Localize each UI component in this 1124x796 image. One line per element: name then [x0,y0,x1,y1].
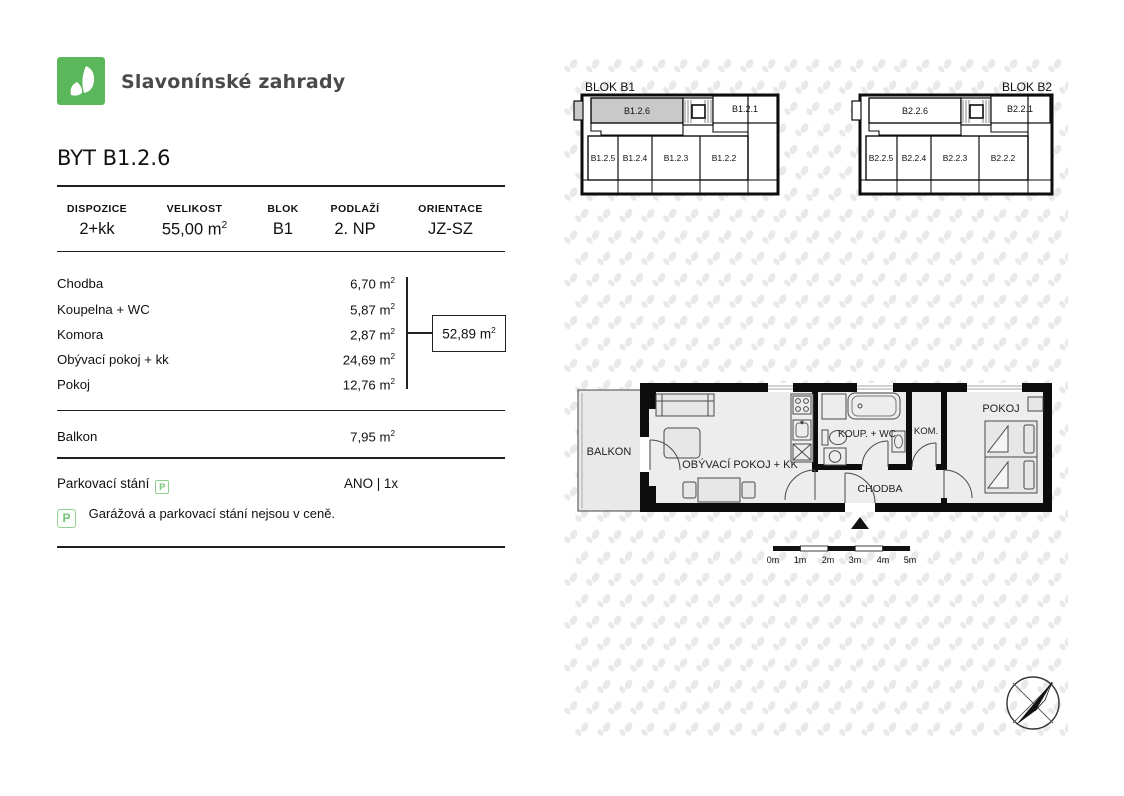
svg-text:0m: 0m [767,555,780,565]
svg-text:POKOJ: POKOJ [982,403,1019,415]
room-row: Chodba 6,70 m2 [57,276,505,296]
svg-text:B2.2.2: B2.2.2 [991,153,1016,163]
svg-text:B2.2.1: B2.2.1 [1007,104,1033,114]
summary-col-velikost: VELIKOST 55,00 m2 [137,203,252,240]
summary-col-dispozice: DISPOZICE 2+kk [57,203,137,240]
parking-icon: P [57,509,76,528]
parking-row: Parkovací stáníP ANO | 1x [57,476,505,494]
scale-bar: 0m 1m 2m 3m 4m 5m [767,546,917,565]
block-b1-schematic: BLOK B1 B1.2.6 B1.2.1 B1.2.5 B1.2.4 B1.2… [572,80,784,200]
summary-col-orientace: ORIENTACE JZ-SZ [396,203,505,240]
block-b2-schematic: BLOK B2 B2.2.6 B2.2.1 B2.2.5 B2.2.4 B2.2… [850,80,1062,200]
parking-value: ANO | 1x [344,476,398,491]
compass-icon [1002,672,1064,734]
summary-col-blok: BLOK B1 [252,203,314,240]
parking-note: P Garážová a parkovací stání nejsou v ce… [57,506,505,528]
kitchen [791,394,813,462]
divider [57,457,505,459]
brand-logo-leaf-icon [57,57,105,105]
svg-text:B1.2.5: B1.2.5 [591,153,616,163]
room-row: Pokoj 12,76 m2 [57,377,505,397]
divider [57,185,505,187]
svg-text:OBÝVACÍ POKOJ + KK: OBÝVACÍ POKOJ + KK [682,458,798,471]
divider [57,410,505,411]
divider [57,546,505,548]
total-area-box: 52,89 m2 [432,315,506,352]
svg-text:B2.2.4: B2.2.4 [902,153,927,163]
parking-icon: P [155,480,169,494]
svg-text:1m: 1m [794,555,807,565]
summary-col-podlazi: PODLAŽÍ 2. NP [314,203,396,240]
apartment-datasheet-page: Slavonínské zahrady BYT B1.2.6 DISPOZICE… [0,0,1124,796]
total-bracket [406,332,432,334]
svg-text:5m: 5m [904,555,917,565]
floorplan: BALKON [572,372,1068,572]
svg-text:CHODBA: CHODBA [858,483,903,495]
summary-table: DISPOZICE 2+kk VELIKOST 55,00 m2 BLOK B1… [57,203,505,240]
svg-text:B1.2.6: B1.2.6 [624,106,650,116]
info-panel: Slavonínské zahrady BYT B1.2.6 DISPOZICE… [57,0,505,796]
svg-text:3m: 3m [849,555,862,565]
svg-text:B2.2.5: B2.2.5 [869,153,894,163]
svg-text:2m: 2m [822,555,835,565]
svg-text:BLOK B1: BLOK B1 [585,80,635,94]
svg-text:B2.2.6: B2.2.6 [902,106,928,116]
svg-text:B1.2.2: B1.2.2 [712,153,737,163]
svg-text:BALKON: BALKON [587,446,632,458]
unit-title: BYT B1.2.6 [57,146,170,170]
svg-text:B1.2.3: B1.2.3 [664,153,689,163]
svg-text:B1.2.4: B1.2.4 [623,153,648,163]
svg-text:KOM.: KOM. [914,426,938,437]
svg-text:4m: 4m [877,555,890,565]
svg-text:KOUP. + WC: KOUP. + WC [838,429,896,440]
project-title: Slavonínské zahrady [121,71,345,93]
svg-text:B2.2.3: B2.2.3 [943,153,968,163]
balcony-row: Balkon 7,95 m2 [57,429,505,449]
svg-text:BLOK B2: BLOK B2 [1002,80,1052,94]
room-balkon: BALKON [578,390,641,511]
divider [57,251,505,252]
svg-text:B1.2.1: B1.2.1 [732,104,758,114]
room-row: Obývací pokoj + kk 24,69 m2 [57,352,505,372]
entrance-arrow-icon [851,517,869,529]
